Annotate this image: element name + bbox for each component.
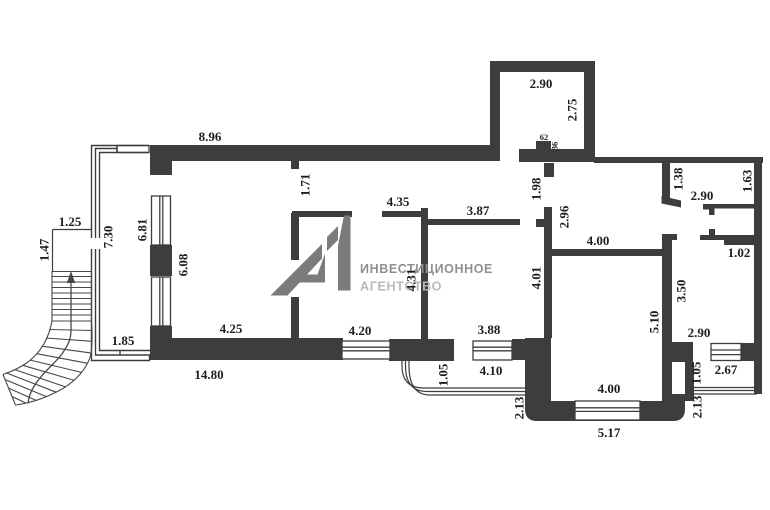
svg-text:4.01: 4.01 [528, 267, 543, 290]
svg-text:2.96: 2.96 [556, 205, 571, 228]
svg-text:4.35: 4.35 [387, 194, 410, 209]
svg-text:8.96: 8.96 [199, 129, 222, 144]
svg-text:4.25: 4.25 [220, 321, 243, 336]
svg-text:ИНВЕСТИЦИОННОЕ: ИНВЕСТИЦИОННОЕ [360, 261, 493, 276]
svg-text:14.80: 14.80 [194, 367, 223, 382]
svg-text:1.05: 1.05 [435, 363, 450, 386]
svg-text:1.63: 1.63 [739, 169, 754, 192]
svg-text:1.47: 1.47 [36, 238, 51, 261]
svg-text:2.13: 2.13 [689, 395, 704, 418]
svg-text:36: 36 [550, 142, 560, 151]
svg-text:4.10: 4.10 [480, 363, 503, 378]
svg-text:5.17: 5.17 [598, 425, 621, 440]
svg-text:2.75: 2.75 [564, 98, 579, 121]
svg-text:1.38: 1.38 [670, 167, 685, 190]
svg-text:62: 62 [540, 132, 549, 142]
svg-text:3.88: 3.88 [478, 322, 501, 337]
svg-text:2.13: 2.13 [511, 396, 526, 419]
svg-text:4.00: 4.00 [587, 233, 610, 248]
svg-text:3.87: 3.87 [467, 203, 490, 218]
svg-text:2.90: 2.90 [688, 325, 711, 340]
svg-text:1.85: 1.85 [112, 333, 135, 348]
svg-text:6.08: 6.08 [175, 253, 190, 276]
svg-text:1.05: 1.05 [688, 361, 703, 384]
svg-text:2.67: 2.67 [715, 362, 738, 377]
svg-text:7.30: 7.30 [100, 226, 115, 249]
svg-text:1.25: 1.25 [59, 214, 82, 229]
svg-text:4.00: 4.00 [598, 381, 621, 396]
svg-text:4.20: 4.20 [349, 323, 372, 338]
svg-text:АГЕНТСТВО: АГЕНТСТВО [360, 279, 442, 294]
svg-text:5.10: 5.10 [646, 311, 661, 334]
svg-text:1.98: 1.98 [528, 177, 543, 200]
svg-text:4.31: 4.31 [403, 269, 418, 292]
svg-text:3.50: 3.50 [673, 280, 688, 303]
svg-text:2.90: 2.90 [530, 76, 553, 91]
svg-text:6.81: 6.81 [134, 219, 149, 242]
svg-text:1.71: 1.71 [297, 174, 312, 197]
svg-text:2.90: 2.90 [691, 188, 714, 203]
svg-text:1.02: 1.02 [728, 245, 751, 260]
